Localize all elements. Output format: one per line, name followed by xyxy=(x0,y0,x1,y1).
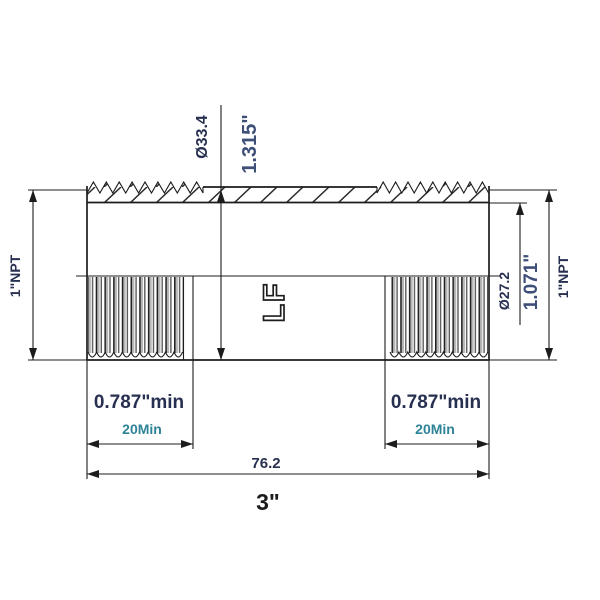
drawing-canvas: LF Ø33.4 1.315" 1"NPT Ø27.2 1.071" 1"NPT… xyxy=(0,0,600,600)
dim-overall-length: 76.2 3" xyxy=(87,455,489,515)
right-thread-texture xyxy=(391,277,488,353)
pipe-nipple-technical-drawing: LF Ø33.4 1.315" 1"NPT Ø27.2 1.071" 1"NPT… xyxy=(0,0,600,600)
thread-min-left-mm-label: 20Min xyxy=(122,421,162,437)
section-band xyxy=(87,182,489,203)
right-thread-section xyxy=(390,277,488,357)
nipple-body: LF xyxy=(76,182,500,360)
dim-right-side: Ø27.2 1.071" 1"NPT xyxy=(489,190,571,360)
thread-min-right-mm-label: 20Min xyxy=(415,421,455,437)
od-inch-label: 1.315" xyxy=(239,114,261,174)
dim-npt-left: 1"NPT xyxy=(7,190,87,360)
dim-thread-length-right: 0.787"min 20Min xyxy=(385,392,489,444)
npt-left-label: 1"NPT xyxy=(7,254,23,297)
thread-min-left-label: 0.787"min xyxy=(94,392,184,413)
dim-thread-length-left: 0.787"min 20Min xyxy=(87,392,193,444)
overall-mm-label: 76.2 xyxy=(251,455,280,472)
overall-inch-label: 3" xyxy=(256,489,280,515)
part-mark-lf: LF xyxy=(258,282,291,323)
npt-right-label: 1"NPT xyxy=(555,255,571,298)
bore-inch-label: 1.071" xyxy=(521,254,542,311)
dim-outer-diameter: Ø33.4 1.315" xyxy=(194,105,261,360)
thread-min-right-label: 0.787"min xyxy=(391,392,481,413)
od-mm-label: Ø33.4 xyxy=(194,115,211,159)
left-thread-texture xyxy=(88,277,183,353)
left-thread-section xyxy=(88,277,184,360)
bore-mm-label: Ø27.2 xyxy=(496,272,512,310)
mid-band-hatch xyxy=(203,187,377,203)
